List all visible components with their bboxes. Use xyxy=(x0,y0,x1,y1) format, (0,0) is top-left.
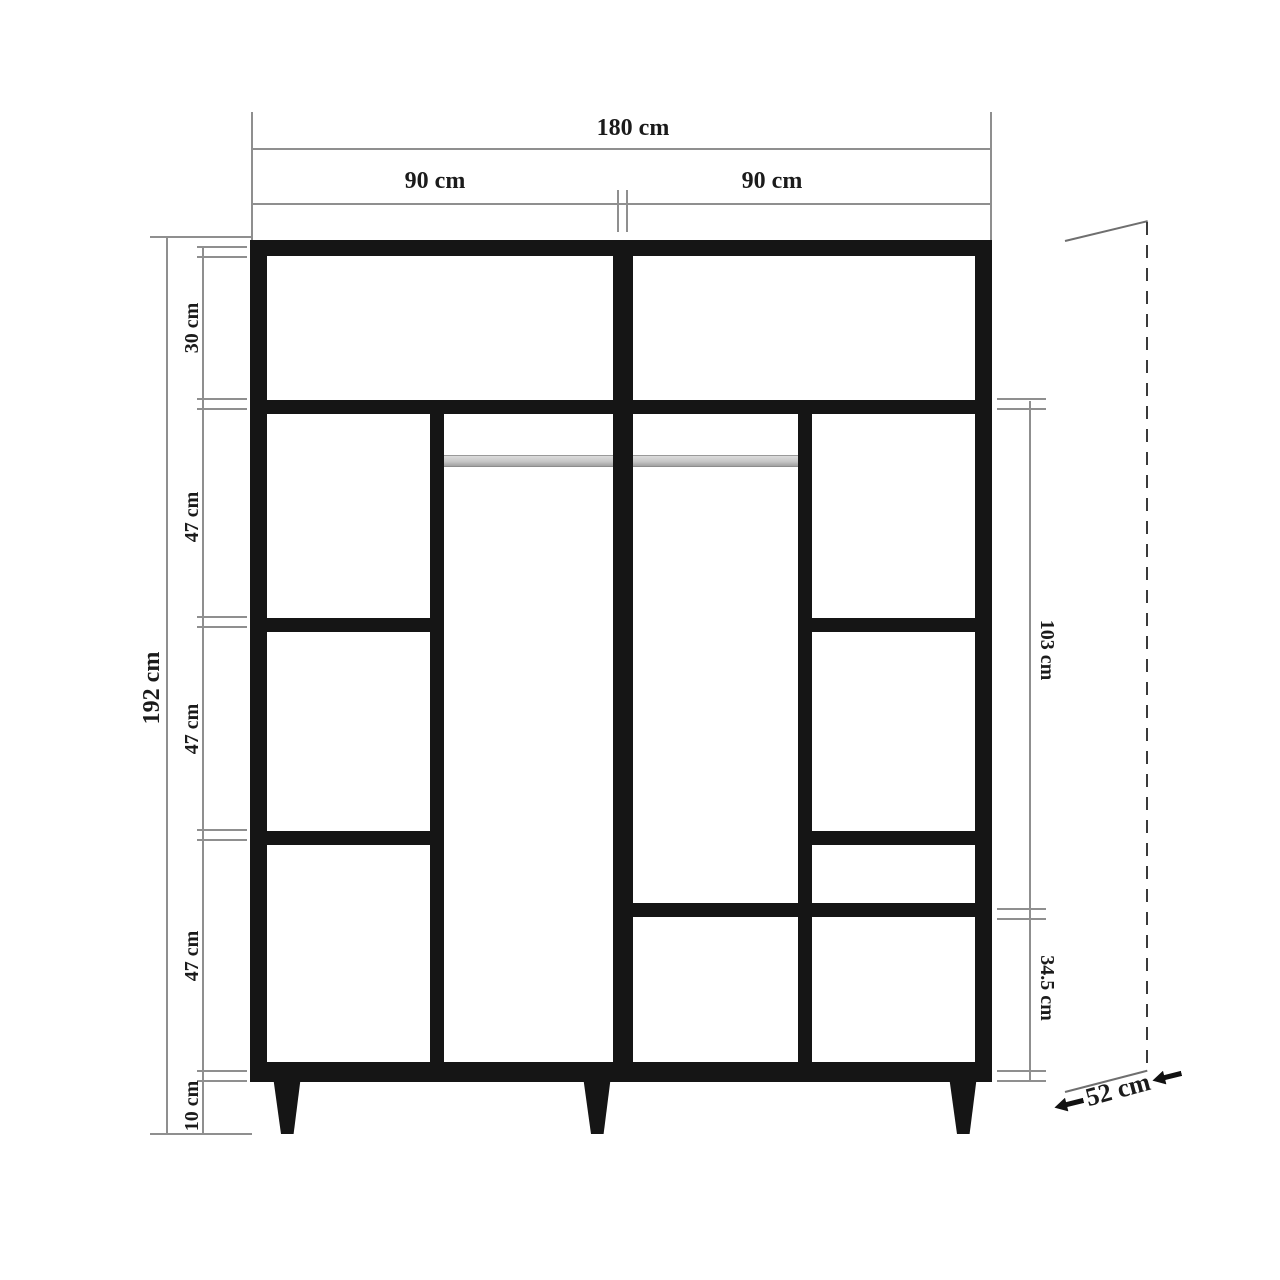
dimension-line-total-width xyxy=(251,148,992,150)
label-section-top: 30 cm xyxy=(178,283,206,373)
center-right-shelf xyxy=(633,903,798,917)
center-divider-panel xyxy=(613,240,633,1082)
label-right-width: 90 cm xyxy=(702,167,842,195)
left-tick-c2 xyxy=(197,626,247,628)
right-tick-b1 xyxy=(997,908,1046,910)
label-left-width: 90 cm xyxy=(365,167,505,195)
hanging-rod-left xyxy=(444,455,613,467)
dimension-line-door-widths xyxy=(251,203,992,205)
cabinet-right-panel xyxy=(975,240,992,1082)
left-tick-c1 xyxy=(197,616,247,618)
right-tick-c1 xyxy=(997,1070,1046,1072)
label-section-1: 47 cm xyxy=(178,472,206,562)
label-depth: 52 cm xyxy=(1066,1064,1170,1117)
hanging-rod-right xyxy=(633,455,798,467)
extension-line-top-right xyxy=(990,112,992,240)
wardrobe-dimension-diagram: 180 cm 90 cm 90 cm 192 cm 30 cm 47 cm 47… xyxy=(0,0,1280,1280)
mid-tick-1 xyxy=(617,190,619,232)
cabinet-leg-center xyxy=(582,1082,612,1134)
right-column-shelf-3 xyxy=(812,903,975,917)
depth-projection-line-top xyxy=(1065,220,1148,242)
right-column-shelf-1 xyxy=(812,618,975,632)
left-tick-d2 xyxy=(197,839,247,841)
left-tick-a2 xyxy=(197,256,247,258)
label-total-width: 180 cm xyxy=(563,114,703,142)
cabinet-left-panel xyxy=(250,240,267,1082)
depth-dashed-line xyxy=(1146,222,1148,1070)
label-section-3: 47 cm xyxy=(178,911,206,1001)
left-tick-b2 xyxy=(197,408,247,410)
label-right-lower: 34.5 cm xyxy=(1033,943,1061,1033)
inner-divider-left xyxy=(430,400,444,1062)
left-tick-b1 xyxy=(197,398,247,400)
label-section-legs: 10 cm xyxy=(178,1061,206,1151)
left-tick-d1 xyxy=(197,829,247,831)
cabinet-leg-right xyxy=(948,1082,978,1134)
total-height-tick-top xyxy=(150,236,252,238)
extension-line-top-left xyxy=(251,112,253,240)
dimension-line-total-height xyxy=(166,236,168,1135)
label-section-2: 47 cm xyxy=(178,684,206,774)
label-right-upper: 103 cm xyxy=(1033,605,1061,695)
label-total-height: 192 cm xyxy=(138,633,166,743)
left-column-shelf-1 xyxy=(267,618,430,632)
dimension-line-right-sections xyxy=(1029,401,1031,1080)
right-tick-c2 xyxy=(997,1080,1046,1082)
right-tick-a1 xyxy=(997,398,1046,400)
left-tick-a1 xyxy=(197,246,247,248)
cabinet-leg-left xyxy=(272,1082,302,1134)
right-tick-b2 xyxy=(997,918,1046,920)
mid-tick-2 xyxy=(626,190,628,232)
top-shelf-full-width xyxy=(267,400,975,414)
right-column-shelf-2 xyxy=(812,831,975,845)
left-column-shelf-2 xyxy=(267,831,430,845)
right-tick-a2 xyxy=(997,408,1046,410)
inner-divider-right xyxy=(798,400,812,1062)
